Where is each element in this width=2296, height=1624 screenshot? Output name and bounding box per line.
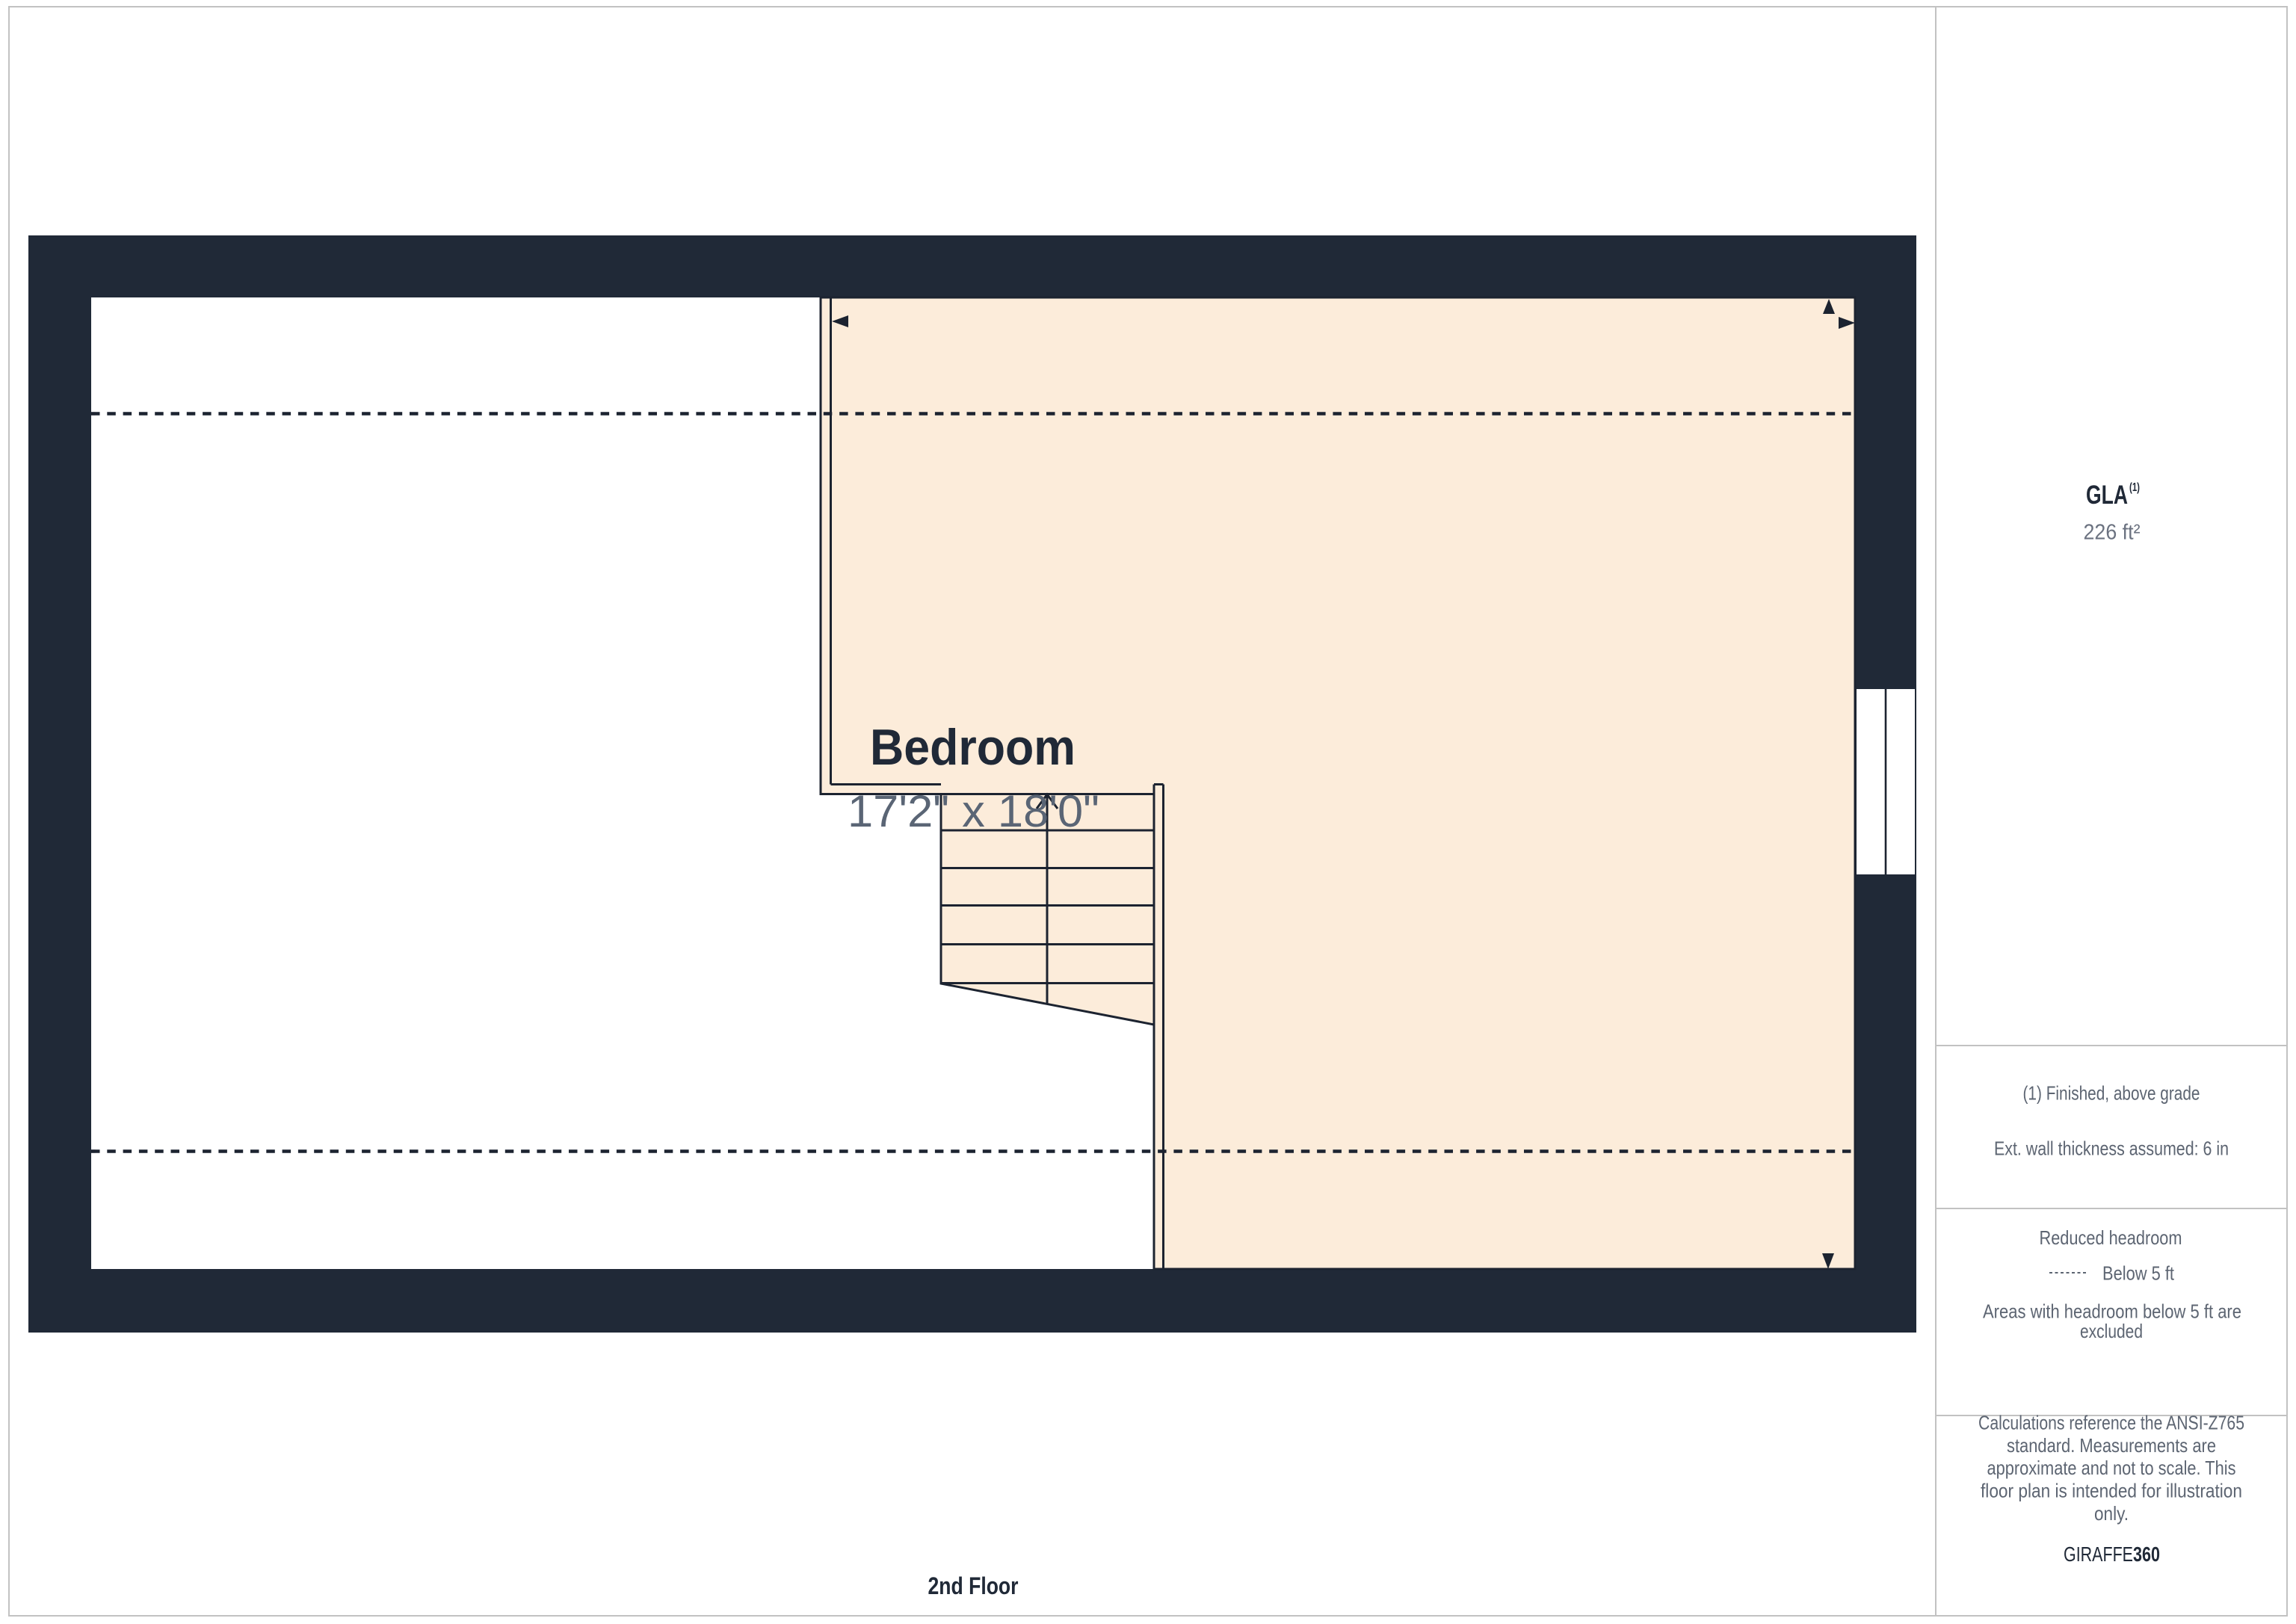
svg-text:Reduced headroom: Reduced headroom <box>2040 1226 2182 1249</box>
svg-text:floor plan is intended for ill: floor plan is intended for illustration <box>1981 1480 2242 1502</box>
svg-text:Areas with headroom below 5 ft: Areas with headroom below 5 ft are <box>1983 1300 2241 1323</box>
svg-text:Bedroom: Bedroom <box>870 719 1076 776</box>
svg-text:approximate and not to scale.: approximate and not to scale. This <box>1987 1457 2236 1479</box>
svg-text:Below 5 ft: Below 5 ft <box>2102 1262 2175 1285</box>
svg-text:standard. Measurements are: standard. Measurements are <box>2007 1434 2216 1457</box>
svg-text:17'2" x 18'0": 17'2" x 18'0" <box>848 786 1099 836</box>
svg-text:(1): (1) <box>2129 481 2140 494</box>
svg-text:360: 360 <box>2133 1543 2160 1566</box>
svg-text:2nd Floor: 2nd Floor <box>928 1572 1019 1599</box>
svg-text:(1) Finished, above grade: (1) Finished, above grade <box>2023 1081 2200 1104</box>
svg-text:Ext. wall thickness assumed: 6: Ext. wall thickness assumed: 6 in <box>1994 1137 2229 1159</box>
svg-text:only.: only. <box>2094 1502 2129 1525</box>
svg-text:excluded: excluded <box>2080 1320 2143 1342</box>
svg-text:Calculations reference the ANS: Calculations reference the ANSI-Z765 <box>1978 1411 2244 1433</box>
svg-text:GLA: GLA <box>2086 481 2128 510</box>
svg-text:226 ft²: 226 ft² <box>2084 521 2141 545</box>
svg-text:GIRAFFE: GIRAFFE <box>2064 1543 2133 1566</box>
